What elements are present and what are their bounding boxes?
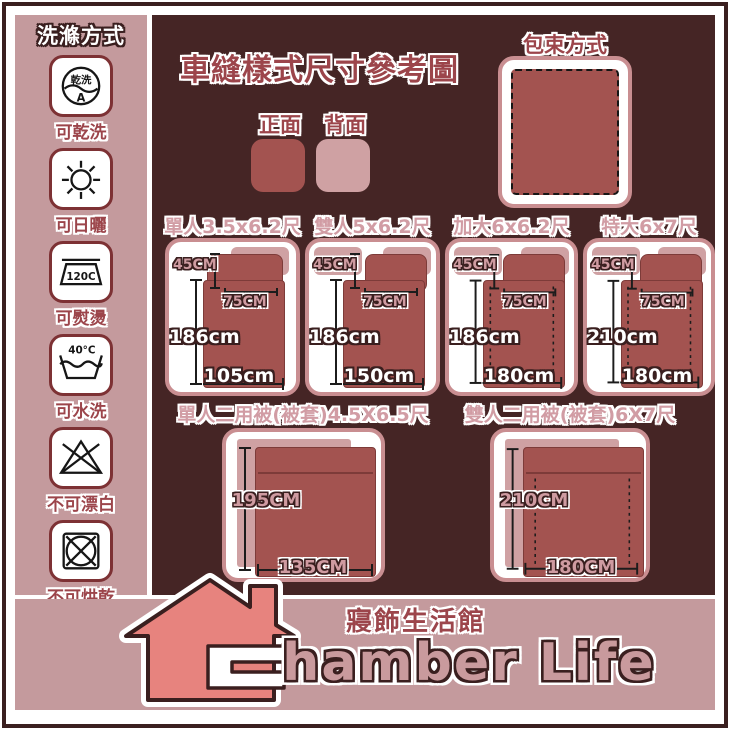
back-side-label: 背面 bbox=[314, 109, 376, 139]
bed-size-card-double: 45CM 75CM 186cm 150cm bbox=[305, 238, 440, 396]
pillow-height-label: 45CM bbox=[173, 257, 217, 273]
svg-text:120C: 120C bbox=[66, 271, 95, 283]
bed-size-card-king: 45CM 75CM 210cm 180cm bbox=[583, 238, 715, 396]
hand-wash-icon: 40°C bbox=[49, 334, 113, 396]
pillow-height-label: 45CM bbox=[453, 257, 497, 273]
pillow-width-label: 75CM bbox=[223, 294, 267, 310]
bed-length-label: 210cm bbox=[587, 326, 649, 348]
size-card-title: 特大6x7尺 bbox=[583, 213, 715, 237]
quilt-length-label: 195CM bbox=[228, 490, 304, 511]
washing-item-label: 可水洗 bbox=[56, 397, 107, 422]
svg-text:乾洗: 乾洗 bbox=[71, 73, 92, 86]
bed-length-label: 186cm bbox=[449, 326, 511, 348]
bed-size-card-queen: 45CM 75CM 186cm 180cm bbox=[445, 238, 578, 396]
size-card-title: 單人3.5x6.2尺 bbox=[165, 213, 300, 237]
washing-item-no-bleach: 不可漂白 bbox=[47, 427, 115, 515]
washing-item-iron: 120C 可熨燙 bbox=[49, 241, 113, 329]
size-card-title: 雙人5x6.2尺 bbox=[305, 213, 440, 237]
quilt-size-card-single: 195CM 135CM bbox=[222, 428, 385, 582]
bed-width-label: 180cm bbox=[613, 365, 701, 387]
packing-method-title: 包束方式 bbox=[498, 29, 632, 59]
iron-icon: 120C bbox=[49, 241, 113, 303]
washing-item-dry-clean: 乾洗 A 可乾洗 bbox=[49, 55, 113, 143]
size-chart-panel: 車縫樣式尺寸參考圖 正面 背面 包束方式 單人3.5x6.2尺 雙人5x6.2尺… bbox=[152, 15, 715, 595]
packing-dashed-diagram bbox=[511, 69, 619, 195]
packing-method-card bbox=[498, 56, 632, 208]
bed-width-label: 105cm bbox=[195, 365, 283, 387]
page-title: 車縫樣式尺寸參考圖 bbox=[162, 45, 477, 89]
bed-length-label: 186cm bbox=[169, 326, 231, 348]
quilt-width-label: 180CM bbox=[520, 557, 642, 578]
no-bleach-icon bbox=[49, 427, 113, 489]
no-tumble-dry-icon bbox=[49, 520, 113, 582]
washing-item-label: 不可漂白 bbox=[47, 490, 115, 515]
pillow-width-label: 75CM bbox=[363, 294, 407, 310]
washing-instructions-sidebar: 洗滌方式 乾洗 A 可乾洗 bbox=[15, 15, 147, 595]
front-side-label: 正面 bbox=[249, 109, 311, 139]
front-color-swatch bbox=[251, 139, 305, 192]
pillow-width-label: 75CM bbox=[641, 294, 685, 310]
poster-canvas: 洗滌方式 乾洗 A 可乾洗 bbox=[0, 0, 730, 730]
bed-width-label: 150cm bbox=[335, 365, 423, 387]
svg-text:40°C: 40°C bbox=[68, 345, 95, 357]
pillow-height-label: 45CM bbox=[591, 257, 635, 273]
bed-length-label: 186cm bbox=[309, 326, 371, 348]
washing-item-sun-dry: 可日曬 bbox=[49, 148, 113, 236]
washing-item-label: 可熨燙 bbox=[56, 304, 107, 329]
quilt-card-title: 單人二用被(被套)4.5X6.5尺 bbox=[168, 401, 438, 425]
dry-clean-icon: 乾洗 A bbox=[49, 55, 113, 117]
quilt-size-card-double: 210CM 180CM bbox=[490, 428, 650, 582]
store-name-english: hamber Life bbox=[222, 633, 716, 693]
bed-size-card-single: 45CM 75CM 186cm 105cm bbox=[165, 238, 300, 396]
pillow-height-label: 45CM bbox=[313, 257, 357, 273]
washing-item-label: 可乾洗 bbox=[56, 118, 107, 143]
svg-text:A: A bbox=[77, 92, 86, 105]
bed-width-label: 180cm bbox=[475, 365, 563, 387]
pillow-width-label: 75CM bbox=[503, 294, 547, 310]
washing-item-no-tumble-dry: 不可烘乾 bbox=[47, 520, 115, 608]
quilt-card-title: 雙人二用被(被套)6X7尺 bbox=[438, 401, 702, 425]
quilt-length-label: 210CM bbox=[496, 490, 572, 511]
back-color-swatch bbox=[316, 139, 370, 192]
washing-item-label: 可日曬 bbox=[56, 211, 107, 236]
washing-method-title: 洗滌方式 bbox=[37, 20, 125, 50]
size-card-title: 加大6x6.2尺 bbox=[445, 213, 578, 237]
sun-icon bbox=[49, 148, 113, 210]
washing-item-hand-wash: 40°C 可水洗 bbox=[49, 334, 113, 422]
